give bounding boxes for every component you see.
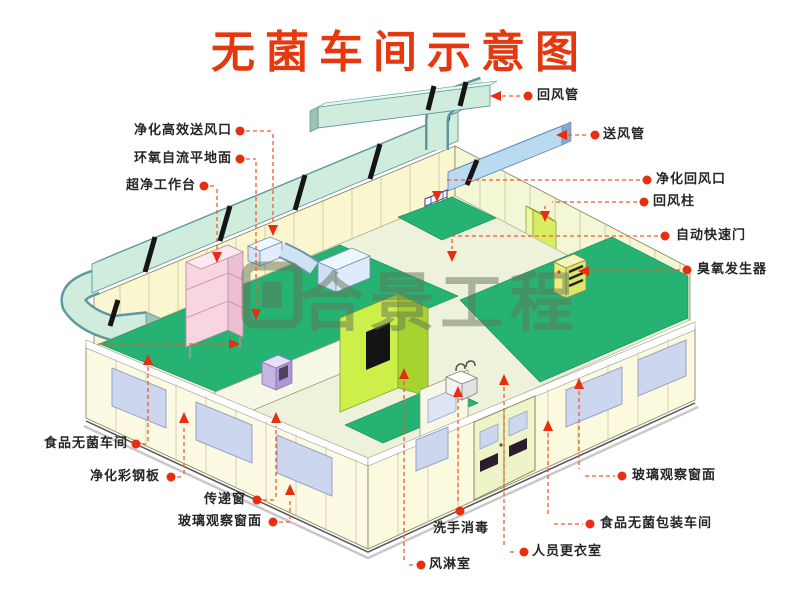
transfer-window-box [262, 355, 292, 390]
label-glass-window-right: 玻璃观察窗面 [632, 468, 716, 484]
label-supply-duct: 送风管 [603, 127, 645, 143]
label-hand-wash: 洗手消毒 [433, 521, 489, 537]
door-knob [499, 443, 502, 446]
label-changing-room: 人员更衣室 [532, 544, 602, 560]
label-transfer-window: 传递窗 [204, 492, 246, 508]
label-auto-rapid-door: 自动快速门 [676, 228, 746, 244]
label-purify-steel-panel: 净化彩钢板 [90, 469, 160, 485]
label-return-duct: 回风管 [537, 88, 579, 104]
label-glass-window-left: 玻璃观察窗面 [178, 514, 262, 530]
label-hepa-supply-outlet: 净化高效送风口 [134, 123, 232, 139]
label-clean-workbench: 超净工作台 [126, 178, 196, 194]
label-ozone-generator: 臭氧发生器 [697, 262, 767, 278]
label-epoxy-floor: 环氧自流平地面 [134, 151, 232, 167]
label-purify-return-outlet: 净化回风口 [656, 172, 726, 188]
label-return-air-column: 回风柱 [653, 194, 695, 210]
label-food-packing-workshop: 食品无菌包装车间 [600, 516, 712, 532]
label-food-sterile-workshop: 食品无菌车间 [44, 436, 128, 452]
ozone-generator-unit [554, 254, 586, 298]
return-duct-top-run [310, 81, 497, 132]
diagram-title: 无菌车间示意图 [211, 16, 589, 80]
label-air-shower: 风淋室 [429, 557, 471, 573]
cleanroom-schematic-page: 无菌车间示意图 合景工程 净化高效送风口 环氧自流平地面 超净工作台 食品无菌车… [0, 0, 800, 607]
